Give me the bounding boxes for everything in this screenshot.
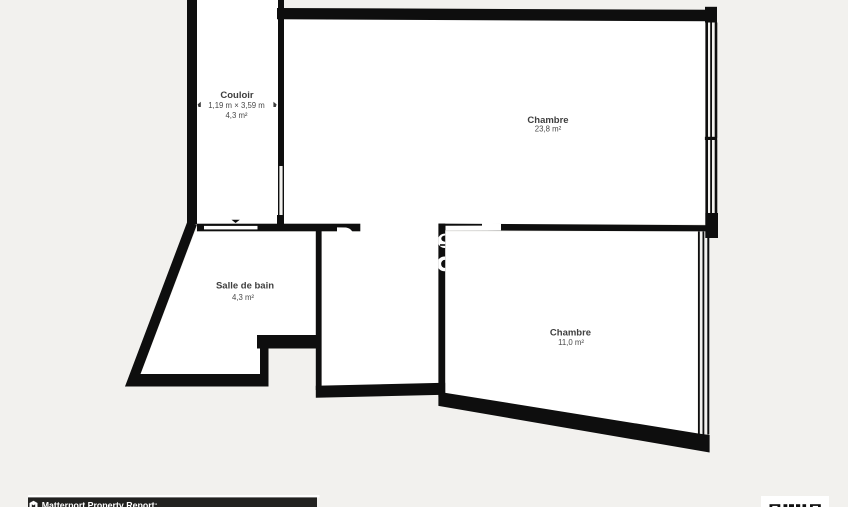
svg-text:1,19 m × 3,59 m: 1,19 m × 3,59 m: [208, 101, 265, 110]
svg-text:4,3 m²: 4,3 m²: [232, 293, 254, 302]
svg-text:23,8 m²: 23,8 m²: [535, 125, 562, 134]
svg-text:Chambre: Chambre: [550, 327, 591, 338]
svg-text:Matterport Property Report:: Matterport Property Report:: [42, 500, 158, 507]
svg-text:Salle de bain: Salle de bain: [216, 281, 274, 292]
svg-text:11,0 m²: 11,0 m²: [558, 338, 584, 347]
svg-text:4,3 m²: 4,3 m²: [225, 111, 247, 120]
svg-text:Couloir: Couloir: [220, 90, 254, 101]
